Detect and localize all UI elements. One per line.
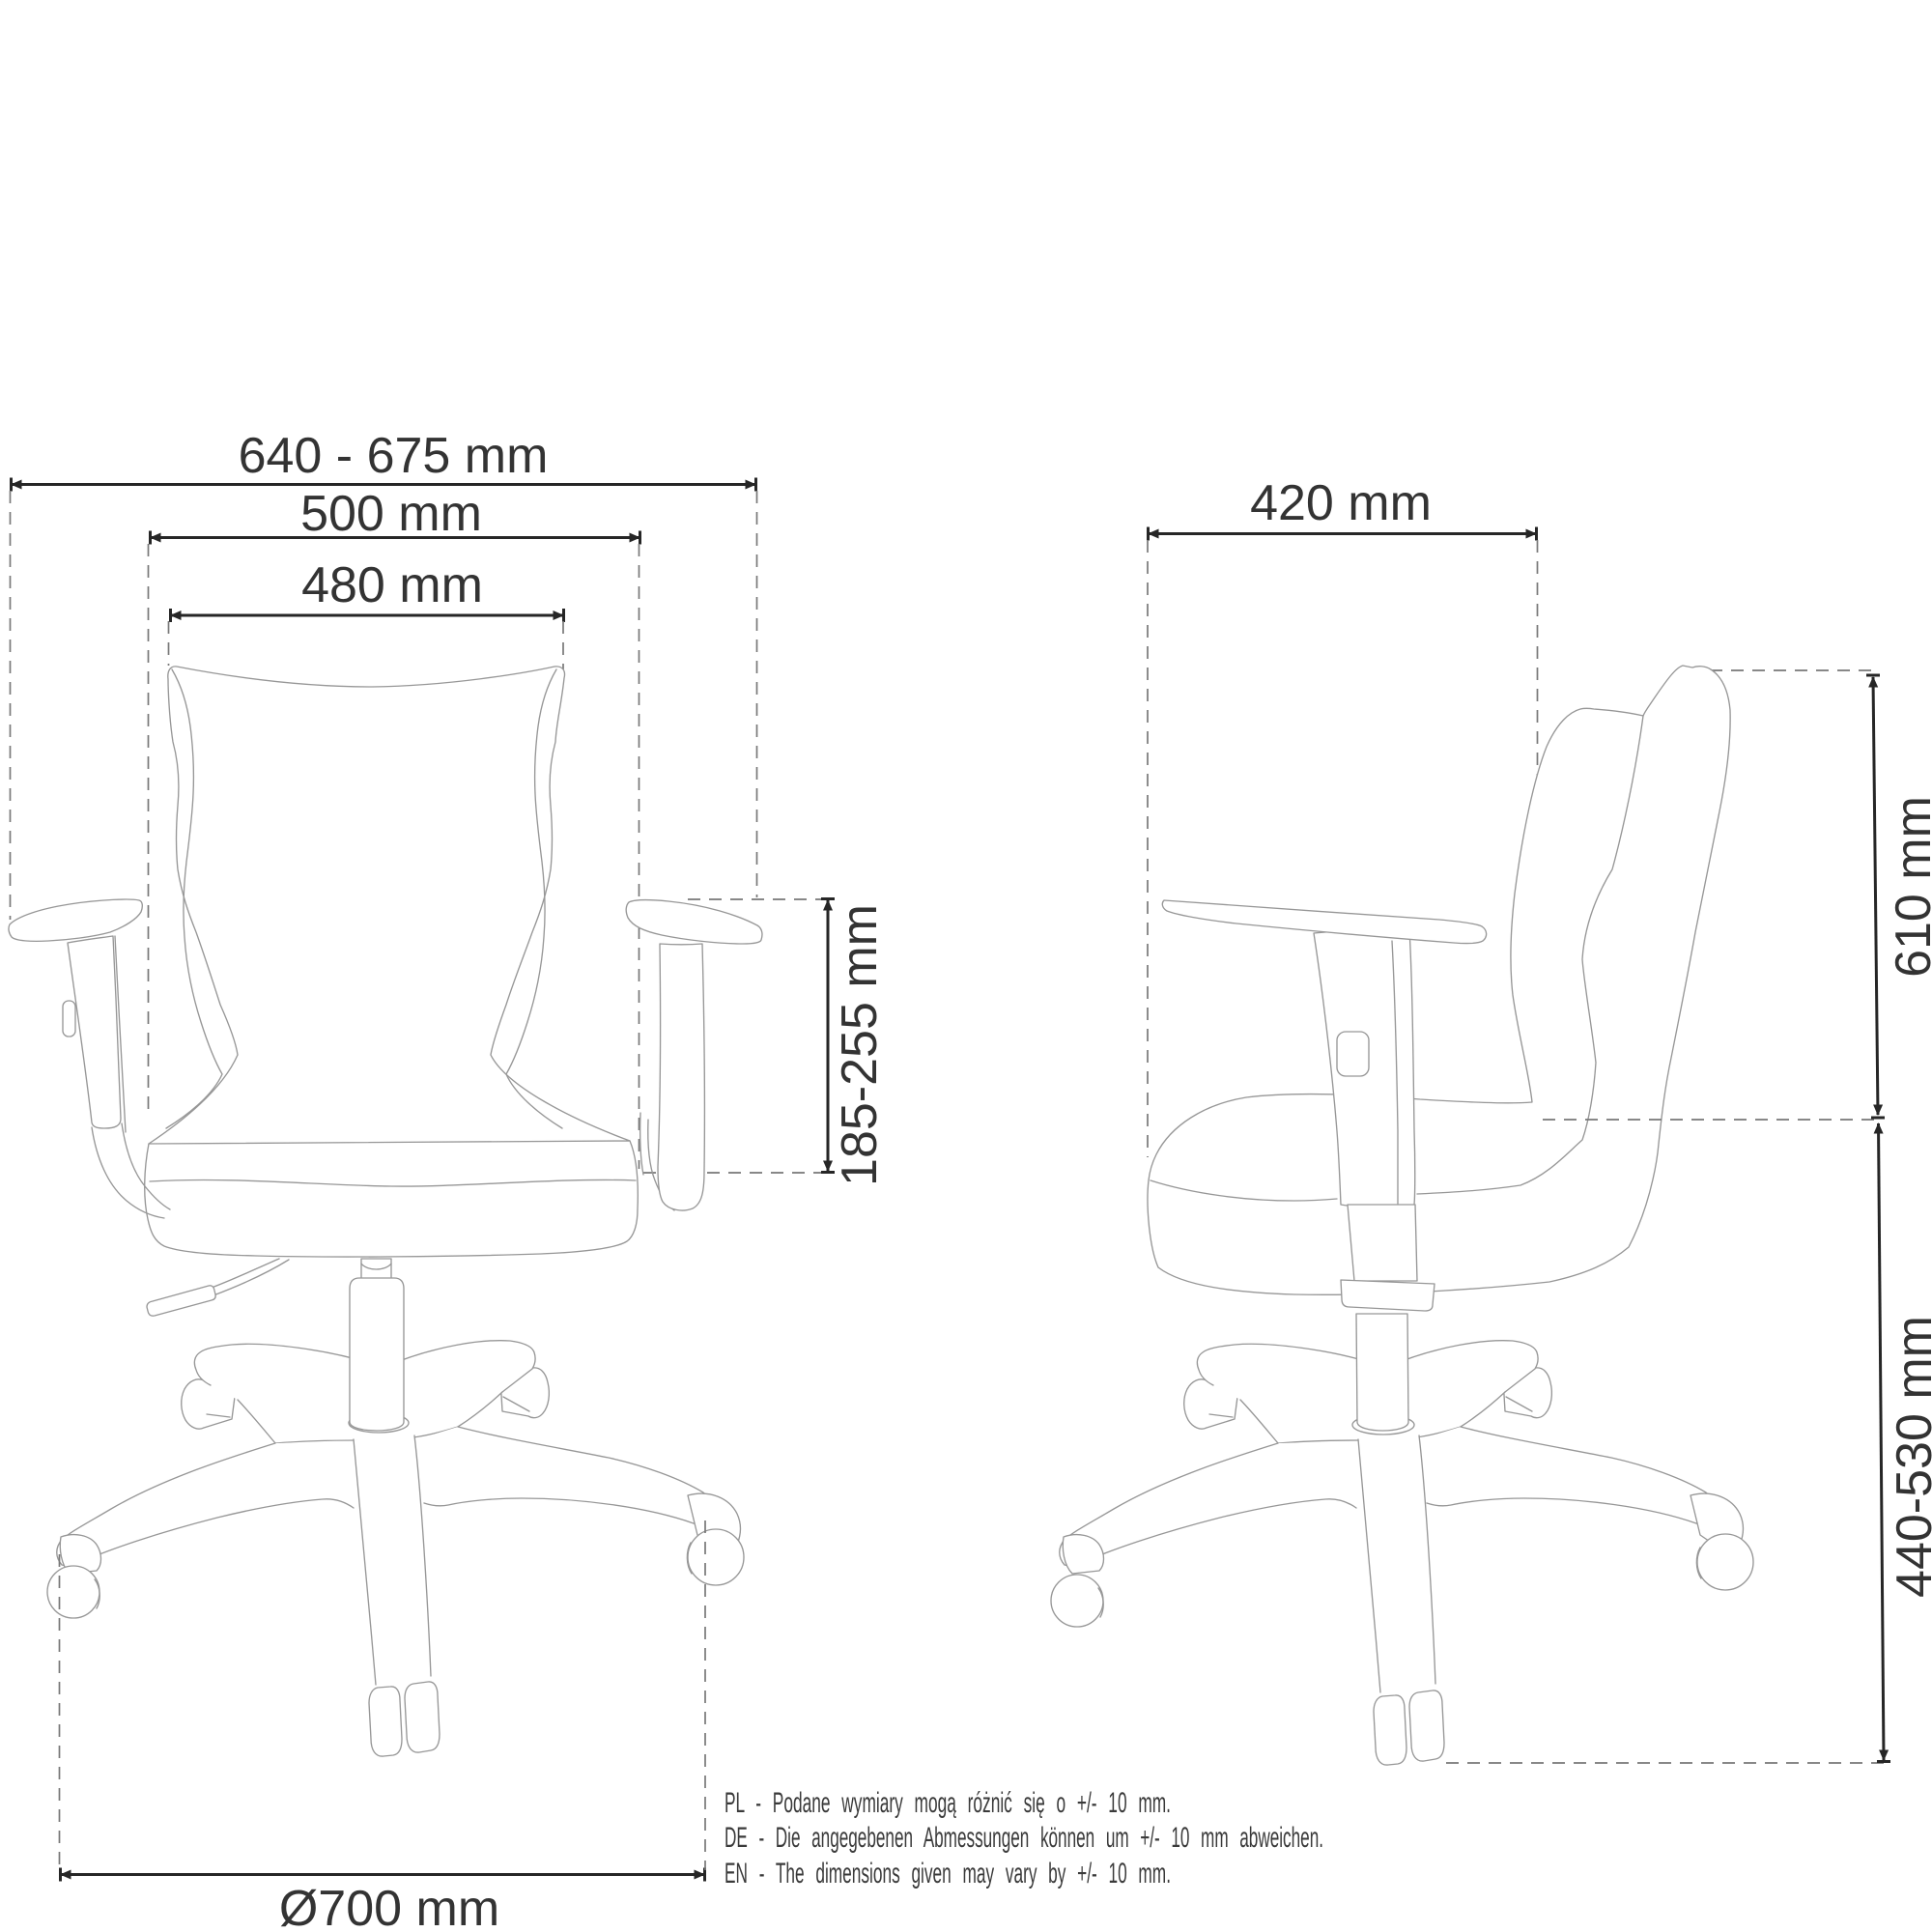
svg-text:480 mm: 480 mm xyxy=(301,557,483,613)
svg-text:420 mm: 420 mm xyxy=(1250,475,1432,531)
svg-text:500 mm: 500 mm xyxy=(300,486,482,542)
svg-text:DE - Die angegebenen Abmessung: DE - Die angegebenen Abmessungen können … xyxy=(724,1822,1323,1854)
svg-text:440-530 mm: 440-530 mm xyxy=(1887,1316,1932,1598)
svg-text:185-255 mm: 185-255 mm xyxy=(832,904,888,1186)
svg-text:PL - Podane wymiary mogą różni: PL - Podane wymiary mogą różnić się o +/… xyxy=(724,1787,1171,1819)
svg-text:640 - 675 mm: 640 - 675 mm xyxy=(239,428,549,484)
svg-text:610 mm: 610 mm xyxy=(1886,796,1932,978)
svg-text:EN - The dimensions given may: EN - The dimensions given may vary by +/… xyxy=(724,1858,1171,1889)
svg-text:Ø700 mm: Ø700 mm xyxy=(279,1881,499,1932)
